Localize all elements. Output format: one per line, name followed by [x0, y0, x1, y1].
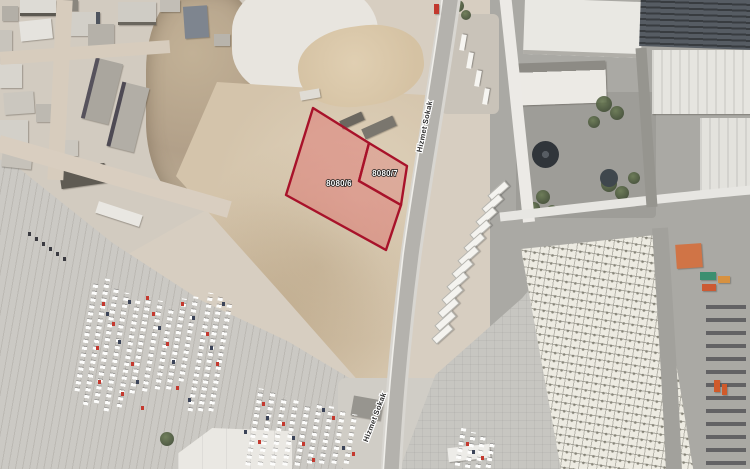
parcel-overlay: 8080/6 8080/7 Hizmet Sokak Hizmet Sokak: [0, 0, 750, 469]
satellite-map-canvas[interactable]: 8080/6 8080/7 Hizmet Sokak Hizmet Sokak: [0, 0, 750, 469]
parcel-label-8080-6: 8080/6: [326, 179, 352, 188]
road-label-hizmet-sokak-bottom: Hizmet Sokak: [361, 391, 388, 444]
road-label-hizmet-sokak-top: Hizmet Sokak: [415, 99, 435, 153]
parcel-label-8080-7: 8080/7: [372, 169, 398, 178]
